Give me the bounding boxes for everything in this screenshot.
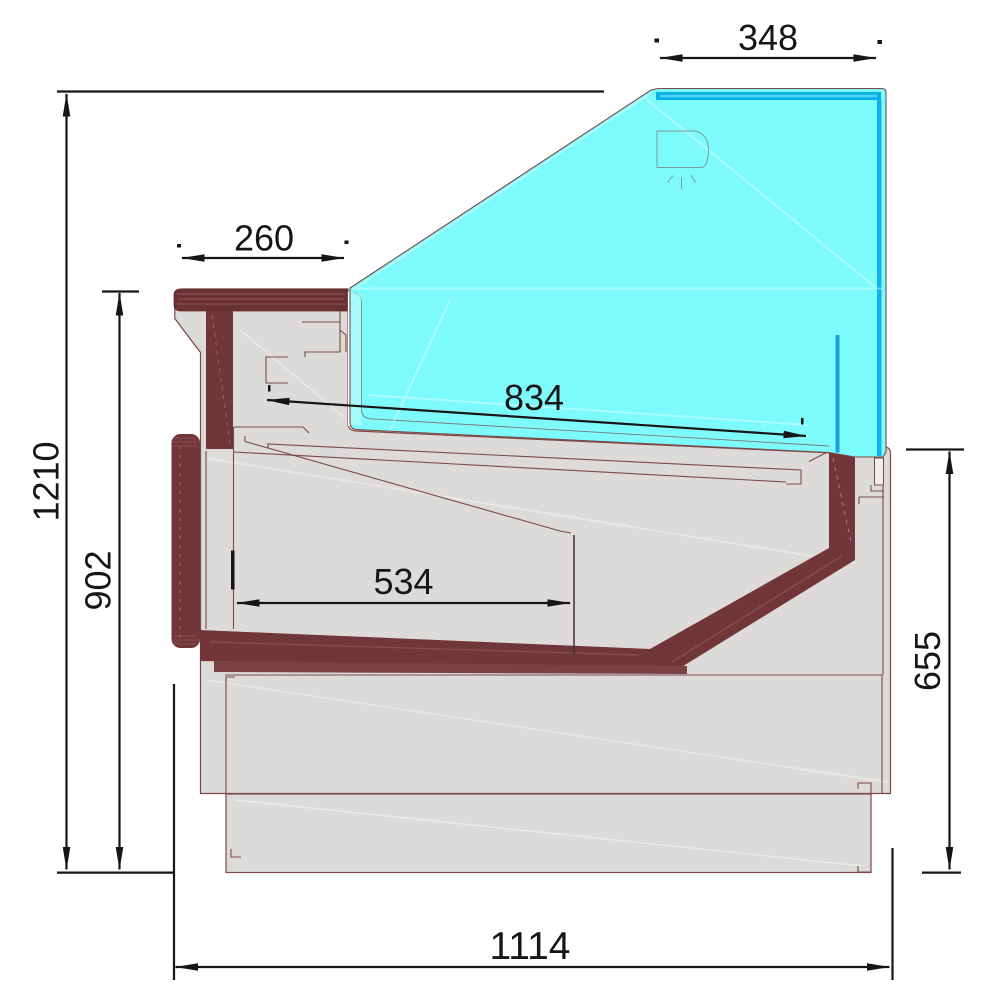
svg-text:348: 348 xyxy=(738,17,798,58)
svg-text:902: 902 xyxy=(78,550,119,610)
svg-text:1210: 1210 xyxy=(26,441,67,521)
svg-text:260: 260 xyxy=(234,218,294,259)
svg-text:1114: 1114 xyxy=(490,925,571,968)
svg-text:655: 655 xyxy=(907,631,948,691)
svg-text:834: 834 xyxy=(504,377,564,418)
svg-text:534: 534 xyxy=(373,561,433,602)
